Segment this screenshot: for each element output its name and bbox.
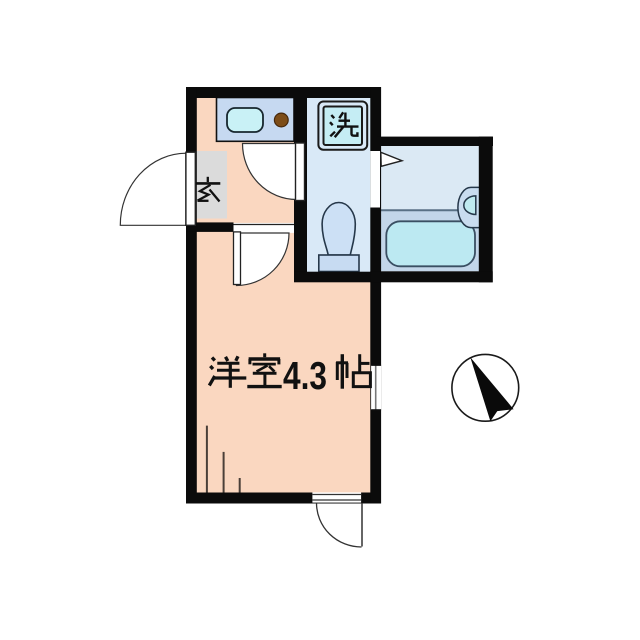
svg-text:4.3: 4.3 [283,355,327,398]
